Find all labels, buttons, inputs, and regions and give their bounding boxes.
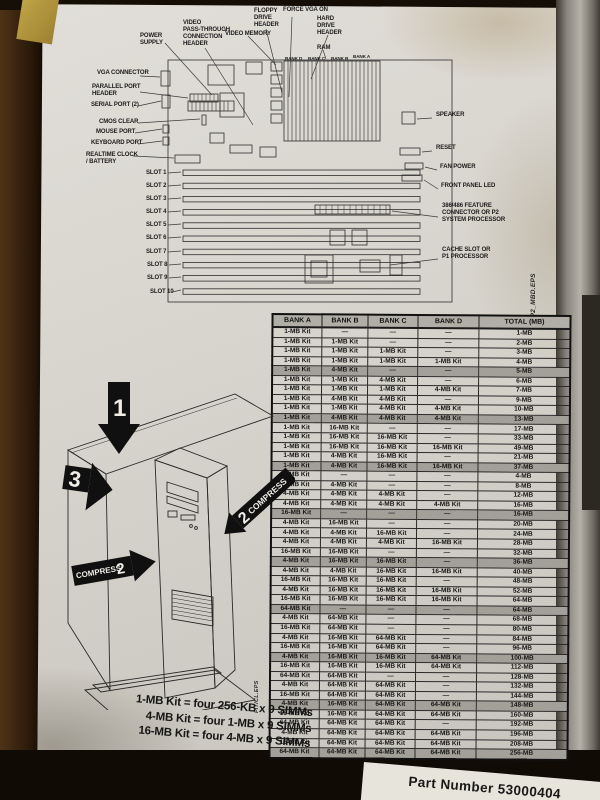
table-cell: — bbox=[415, 691, 476, 701]
table-cell: — bbox=[321, 509, 367, 519]
table-cell: — bbox=[416, 644, 477, 654]
diagram-label: SLOT 5 bbox=[146, 222, 166, 229]
table-cell: 16-MB Kit bbox=[416, 539, 477, 549]
table-cell: 16-MB Kit bbox=[417, 462, 478, 472]
table-cell: 64-MB Kit bbox=[416, 653, 477, 663]
table-cell: 16-MB Kit bbox=[367, 462, 417, 472]
eps-filename-note: PP2_MBD.EPS bbox=[530, 242, 537, 322]
table-cell: 16-MB Kit bbox=[366, 567, 416, 577]
table-cell: 64-MB Kit bbox=[415, 729, 476, 739]
table-cell: — bbox=[322, 327, 368, 337]
table-cell: 64-MB Kit bbox=[415, 739, 476, 749]
column-header: BANK B bbox=[322, 314, 368, 327]
isa-slots bbox=[183, 170, 420, 294]
table-cell: 16-MB Kit bbox=[416, 586, 477, 596]
table-cell: 16-MB Kit bbox=[320, 586, 366, 596]
tower-top-face bbox=[155, 448, 227, 478]
panel-top-face bbox=[68, 394, 273, 474]
arrow-step1: 1 bbox=[98, 382, 140, 454]
table-cell: 1-MB bbox=[479, 328, 571, 339]
table-cell: 13-MB bbox=[478, 415, 570, 425]
diagram-label: SPEAKER bbox=[436, 112, 464, 119]
table-cell: 64-MB Kit bbox=[365, 681, 415, 691]
table-cell: 64-MB Kit bbox=[415, 710, 476, 720]
table-cell: — bbox=[366, 624, 416, 634]
table-cell: 16-MB Kit bbox=[321, 519, 367, 529]
table-cell: 4-MB Kit bbox=[320, 538, 366, 548]
table-cell: — bbox=[416, 558, 477, 568]
table-cell: 16-MB Kit bbox=[366, 557, 416, 567]
table-cell: 64-MB Kit bbox=[365, 748, 415, 758]
diagram-label: SLOT 1 bbox=[146, 170, 166, 177]
table-cell: — bbox=[320, 605, 366, 615]
table-cell: 64-MB Kit bbox=[365, 739, 415, 749]
table-cell: 64-MB Kit bbox=[319, 671, 365, 681]
table-cell: — bbox=[417, 424, 478, 434]
table-cell: 16-MB Kit bbox=[367, 433, 417, 443]
table-cell: 16-MB Kit bbox=[321, 423, 367, 433]
table-cell: 1-MB Kit bbox=[322, 347, 368, 357]
table-cell: 16-MB Kit bbox=[366, 595, 416, 605]
table-cell: 64-MB Kit bbox=[365, 700, 415, 710]
table-cell: 4-MB Kit bbox=[321, 414, 367, 424]
table-cell: 16-MB Kit bbox=[416, 596, 477, 606]
diagram-label: FORCE VGA ON bbox=[283, 7, 328, 14]
table-cell: 64-MB Kit bbox=[366, 643, 416, 653]
vga-connector-shape bbox=[161, 71, 170, 86]
table-cell: 64-MB Kit bbox=[319, 719, 365, 729]
table-cell: — bbox=[416, 548, 477, 558]
column-header: BANK C bbox=[368, 315, 418, 328]
table-cell: 4-MB Kit bbox=[366, 538, 416, 548]
diagram-label: BANK C bbox=[308, 56, 325, 61]
table-cell: 10-MB bbox=[478, 405, 570, 415]
speaker-shape bbox=[402, 112, 415, 124]
table-cell: 1-MB Kit bbox=[272, 366, 322, 376]
table-cell: 4-MB Kit bbox=[321, 452, 367, 462]
table-cell: — bbox=[417, 491, 478, 501]
power-supply-connector bbox=[188, 101, 234, 111]
table-cell: 1-MB Kit bbox=[322, 356, 368, 366]
simm-banks bbox=[284, 61, 380, 141]
table-cell: — bbox=[367, 471, 417, 481]
table-body: 1-MB Kit———1-MB1-MB Kit1-MB Kit——2-MB1-M… bbox=[269, 327, 570, 760]
diagram-label: SLOT 9 bbox=[147, 275, 167, 282]
table-cell: 4-MB Kit bbox=[417, 500, 478, 510]
table-cell: — bbox=[415, 720, 476, 730]
table-cell: 4-MB Kit bbox=[321, 395, 367, 405]
arrow-compress-step2: COMPRESS 2 bbox=[70, 546, 158, 592]
column-header: BANK A bbox=[272, 314, 322, 327]
diagram-label: SERIAL PORT (2) bbox=[91, 102, 139, 109]
table-cell: 1-MB Kit bbox=[272, 356, 322, 366]
table-cell: 4-MB Kit bbox=[321, 461, 367, 471]
table-cell: 1-MB Kit bbox=[322, 376, 368, 386]
column-header: TOTAL (MB) bbox=[479, 315, 571, 329]
fan-power-header-shape bbox=[405, 163, 423, 169]
part-number: Part Number 53000404 bbox=[408, 774, 562, 800]
reset-header-shape bbox=[400, 148, 420, 155]
diagram-label: FLOPPY DRIVE HEADER bbox=[254, 8, 279, 29]
table-cell: 16-MB Kit bbox=[367, 443, 417, 453]
table-cell: 4-MB Kit bbox=[321, 500, 367, 510]
table-cell: 64-MB Kit bbox=[319, 748, 365, 758]
table-cell: — bbox=[417, 395, 478, 405]
table-cell: 1-MB Kit bbox=[322, 337, 368, 347]
diagram-label: FAN POWER bbox=[440, 164, 475, 171]
table-cell: — bbox=[366, 605, 416, 615]
table-cell: 16-MB Kit bbox=[366, 653, 416, 663]
diagram-label: BANK D bbox=[285, 56, 302, 61]
diagram-label: SLOT 4 bbox=[146, 209, 166, 216]
tower-right-face bbox=[207, 466, 235, 688]
table-cell: — bbox=[415, 682, 476, 692]
table-cell: — bbox=[417, 453, 478, 463]
table-cell: 64-MB Kit bbox=[365, 720, 415, 730]
table-cell: 1-MB Kit bbox=[368, 347, 418, 357]
diagram-label: SLOT 8 bbox=[147, 262, 167, 269]
table-cell: 64-MB Kit bbox=[319, 738, 365, 748]
table-cell: 16-MB Kit bbox=[320, 633, 366, 643]
cmos-jumper-shape bbox=[202, 115, 206, 125]
table-cell: 64-MB Kit bbox=[365, 710, 415, 720]
table-cell: 4-MB Kit bbox=[367, 500, 417, 510]
diagram-label: KEYBOARD PORT bbox=[91, 140, 142, 147]
diagram-label: SLOT 3 bbox=[146, 196, 166, 203]
table-cell: 4-MB Kit bbox=[368, 376, 418, 386]
table-cell: — bbox=[365, 672, 415, 682]
table-cell: — bbox=[367, 424, 417, 434]
battery-shape bbox=[175, 155, 200, 163]
table-cell: 16-MB Kit bbox=[366, 662, 416, 672]
table-cell: 4-MB Kit bbox=[367, 414, 417, 424]
table-cell: — bbox=[366, 615, 416, 625]
diagram-label: PARALLEL PORT HEADER bbox=[92, 84, 140, 98]
table-cell: 1-MB Kit bbox=[321, 404, 367, 414]
table-cell: — bbox=[368, 328, 418, 338]
table-cell: — bbox=[417, 510, 478, 520]
diagram-label: FRONT PANEL LED bbox=[441, 183, 495, 190]
table-cell: — bbox=[417, 519, 478, 529]
diagram-label: SLOT 10 bbox=[150, 289, 174, 296]
table-cell: — bbox=[321, 471, 367, 481]
table-cell: — bbox=[416, 634, 477, 644]
table-cell: — bbox=[416, 577, 477, 587]
table-cell: 64-MB Kit bbox=[320, 624, 366, 634]
table-cell: 4-MB Kit bbox=[321, 490, 367, 500]
table-cell: 4-MB Kit bbox=[417, 414, 478, 424]
table-cell: 4-MB Kit bbox=[367, 490, 417, 500]
diagram-label: VGA CONNECTOR bbox=[97, 70, 149, 77]
cpu-shape bbox=[305, 255, 333, 283]
table-cell: — bbox=[415, 672, 476, 682]
table-cell: 16-MB Kit bbox=[416, 567, 477, 577]
table-cell: 16-MB Kit bbox=[366, 586, 416, 596]
table-cell: — bbox=[418, 367, 479, 377]
table-cell: 1-MB Kit bbox=[272, 347, 322, 357]
diagram-label: SLOT 6 bbox=[146, 235, 166, 242]
table-cell: 64-MB Kit bbox=[319, 691, 365, 701]
table-cell: — bbox=[367, 519, 417, 529]
diagram-label: CACHE SLOT OR P1 PROCESSOR bbox=[442, 247, 490, 261]
table-cell: — bbox=[366, 548, 416, 558]
table-cell: 1-MB Kit bbox=[367, 385, 417, 395]
table-cell: — bbox=[416, 605, 477, 615]
diagram-label: RESET bbox=[436, 145, 456, 152]
table-cell: — bbox=[417, 433, 478, 443]
table-cell: — bbox=[418, 376, 479, 386]
table-cell: 64-MB Kit bbox=[320, 614, 366, 624]
table-cell: 16-MB Kit bbox=[320, 643, 366, 653]
table-row: 64-MB Kit64-MB Kit64-MB Kit64-MB Kit256-… bbox=[269, 748, 567, 760]
diagram-label: RAM bbox=[317, 45, 330, 52]
table-cell: — bbox=[418, 348, 479, 358]
diagram-label: MOUSE PORT bbox=[96, 129, 135, 136]
table-cell: 1-MB Kit bbox=[272, 327, 322, 337]
diagram-label: 386/486 FEATURE CONNECTOR OR P2 SYSTEM P… bbox=[442, 203, 505, 224]
photo-of-case-label: POWER SUPPLYVIDEO PASS-THROUGH CONNECTIO… bbox=[0, 0, 600, 800]
table-cell: 64-MB Kit bbox=[319, 681, 365, 691]
tower-front-bezel bbox=[155, 460, 215, 698]
table-cell: 16-MB Kit bbox=[367, 452, 417, 462]
table-cell: — bbox=[367, 481, 417, 491]
table-cell: 16-MB Kit bbox=[319, 700, 365, 710]
diagram-label: SLOT 7 bbox=[146, 249, 166, 256]
table-cell: 16-MB Kit bbox=[366, 529, 416, 539]
table-cell: 16-MB Kit bbox=[321, 442, 367, 452]
table-cell: — bbox=[368, 338, 418, 348]
table-cell: 4-MB Kit bbox=[417, 386, 478, 396]
table-cell: — bbox=[416, 615, 477, 625]
table-cell: — bbox=[418, 338, 479, 348]
table-cell: — bbox=[368, 366, 418, 376]
column-header: BANK D bbox=[418, 315, 479, 328]
table-cell: — bbox=[417, 472, 478, 482]
table-cell: 64-MB Kit bbox=[416, 663, 477, 673]
table-cell: 16-MB Kit bbox=[366, 576, 416, 586]
table-cell: 16-MB Kit bbox=[320, 652, 366, 662]
case-frame-slot bbox=[582, 295, 600, 510]
diagram-label: REALTIME CLOCK / BATTERY bbox=[86, 152, 138, 166]
table-cell: 16-MB Kit bbox=[320, 547, 366, 557]
table-cell: 16-MB Kit bbox=[320, 576, 366, 586]
table-cell: 64-MB Kit bbox=[415, 701, 476, 711]
table-cell: 64-MB Kit bbox=[415, 749, 476, 759]
table-cell: — bbox=[367, 510, 417, 520]
table-cell: 1-MB Kit bbox=[368, 357, 418, 367]
table-cell: 16-MB Kit bbox=[417, 443, 478, 453]
table-cell: 1-MB Kit bbox=[321, 385, 367, 395]
svg-text:COMPRESS: COMPRESS bbox=[246, 476, 289, 516]
table-cell: — bbox=[417, 481, 478, 491]
diagram-label: BANK B bbox=[331, 56, 348, 61]
table-cell: 16-MB Kit bbox=[321, 433, 367, 443]
table-cell: 4-MB Kit bbox=[367, 395, 417, 405]
memory-config-table: BANK ABANK BBANK CBANK DTOTAL (MB) 1-MB … bbox=[268, 313, 571, 761]
table-cell: 4-MB Kit bbox=[367, 405, 417, 415]
table-cell: 256-MB bbox=[476, 749, 568, 760]
table-cell: 4-MB Kit bbox=[320, 566, 366, 576]
table-cell: — bbox=[418, 328, 479, 338]
table-cell: — bbox=[416, 529, 477, 539]
table-cell: 4-MB Kit bbox=[322, 366, 368, 376]
diagram-label: POWER SUPPLY bbox=[140, 33, 163, 47]
table-cell: 64-MB Kit bbox=[319, 729, 365, 739]
diagram-label: BANK A bbox=[353, 54, 370, 59]
table-cell: 4-MB Kit bbox=[321, 481, 367, 491]
diagram-label: VIDEO MEMORY bbox=[225, 31, 271, 38]
table-cell: 1-MB Kit bbox=[272, 337, 322, 347]
table-cell: 16-MB Kit bbox=[319, 710, 365, 720]
table-cell: 64-MB Kit bbox=[365, 729, 415, 739]
serial-port-shape bbox=[162, 95, 170, 108]
table-cell: 16-MB Kit bbox=[320, 595, 366, 605]
table-cell: 64-MB Kit bbox=[366, 634, 416, 644]
table-cell: — bbox=[416, 624, 477, 634]
vent-grille bbox=[172, 590, 213, 626]
diagram-label: CMOS CLEAR bbox=[99, 119, 138, 126]
svg-text:1: 1 bbox=[113, 395, 126, 422]
table-cell: 16-MB Kit bbox=[320, 557, 366, 567]
table-cell: 16-MB Kit bbox=[320, 662, 366, 672]
diagram-label: HARD DRIVE HEADER bbox=[317, 16, 342, 37]
diagram-label: SLOT 2 bbox=[146, 183, 166, 190]
table-cell: 4-MB Kit bbox=[320, 528, 366, 538]
diagram-label: VIDEO PASS-THROUGH CONNECTION HEADER bbox=[183, 20, 230, 48]
table-cell: 64-MB Kit bbox=[365, 691, 415, 701]
table-cell: 4-MB Kit bbox=[417, 405, 478, 415]
table-cell: 1-MB Kit bbox=[418, 357, 479, 367]
